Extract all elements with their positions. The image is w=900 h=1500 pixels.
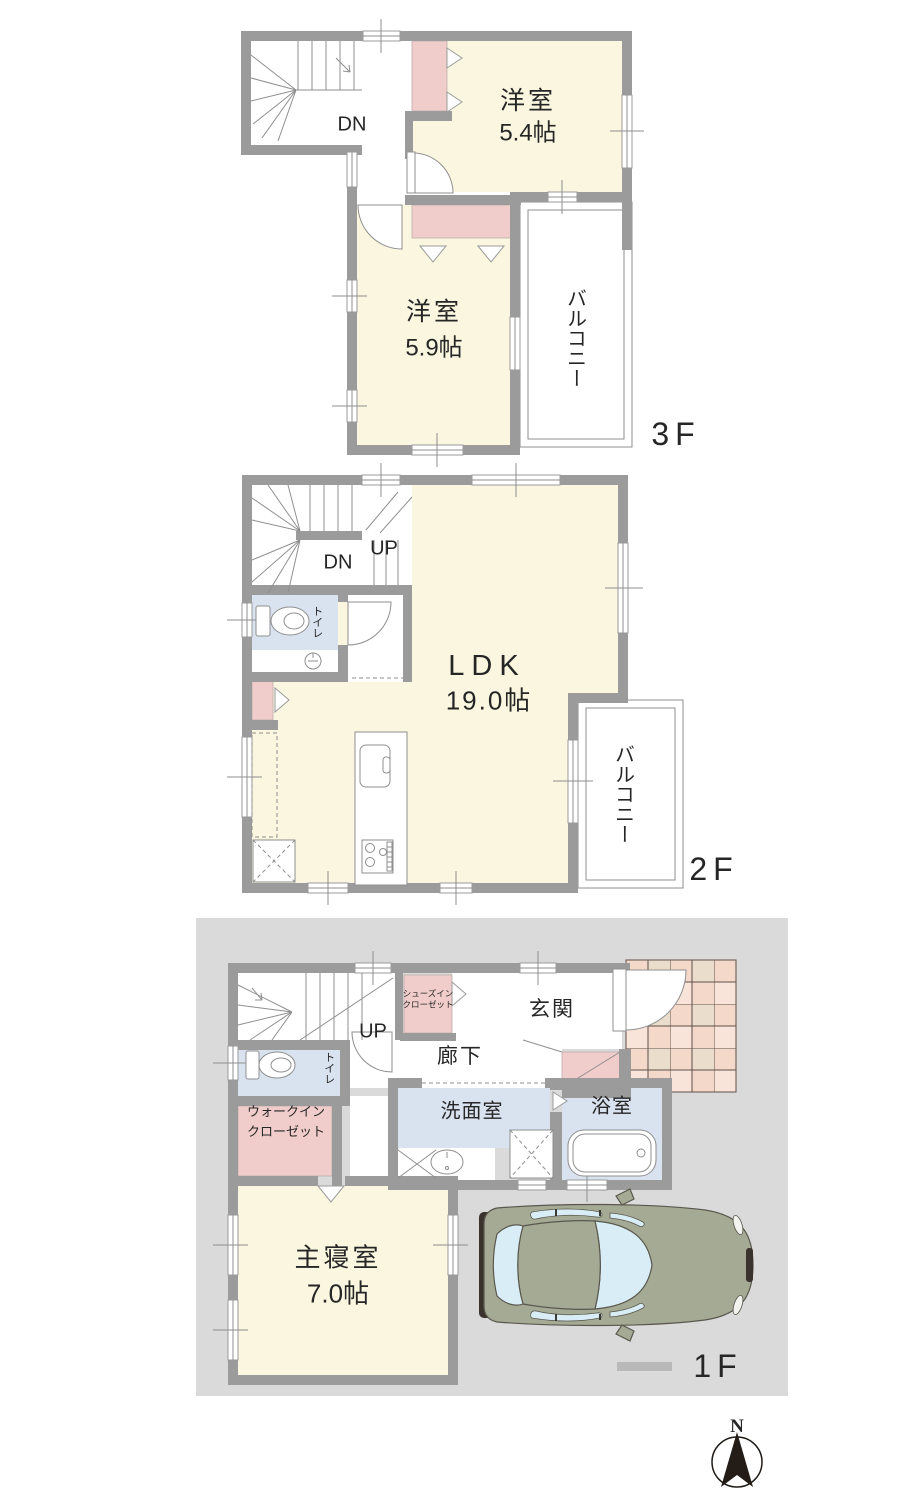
room-label-3f-b-name: 洋室 — [406, 299, 462, 325]
floor-label-2f: 2F — [689, 853, 738, 887]
room-label-2f-balcony: バルコニー — [612, 744, 633, 844]
floor-1f — [196, 918, 788, 1396]
room-label-3f-balcony: バルコニー — [564, 288, 585, 388]
room-label-bedroom: 主寝室 — [294, 1244, 381, 1271]
compass-icon — [712, 1432, 762, 1487]
hatch-box-2f — [253, 840, 295, 882]
room-label-2f-ldk: LDK — [448, 651, 525, 681]
stair-label-1f-up: UP — [359, 1022, 387, 1043]
parking-mark — [617, 1362, 672, 1371]
room-label-1f-toilet: トイレ — [322, 1052, 334, 1085]
room-label-2f-ldk-size: 19.0帖 — [446, 687, 533, 714]
basin-icon-1f — [431, 1150, 463, 1174]
closet-3f-b — [412, 205, 511, 238]
closet-3f-a — [412, 41, 447, 111]
room-label-3f-a-size: 5.4帖 — [499, 120, 556, 145]
room-label-3f-a-name: 洋室 — [500, 88, 556, 114]
floor-label-3f: 3F — [651, 418, 700, 452]
room-label-shoes-closet-1: シューズイン — [403, 990, 454, 999]
room-label-shoes-closet-2: クローゼット — [402, 1001, 453, 1010]
closet-2f — [252, 678, 273, 720]
basin-icon-2f — [305, 653, 321, 669]
compass-north-label: N — [730, 1417, 744, 1437]
room-label-bathroom: 浴室 — [591, 1097, 633, 1118]
stair-label-2f-up: UP — [370, 539, 398, 560]
floor-label-1f: 1F — [693, 1350, 742, 1384]
kitchen-island-icon — [355, 732, 407, 885]
room-label-hallway: 廊下 — [437, 1046, 483, 1068]
room-label-wic-2: クローゼット — [247, 1125, 325, 1139]
room-label-wic-1: ウォークイン — [247, 1105, 325, 1119]
washing-machine-icon — [510, 1130, 553, 1178]
floor-3f — [241, 19, 644, 467]
stair-label-3f-dn: DN — [338, 115, 367, 136]
floor-plan-page: DN 洋室 5.4帖 洋室 5.9帖 バルコニー 3F DN UP トイレ LD… — [0, 0, 900, 1500]
room-label-3f-b-size: 5.9帖 — [405, 335, 462, 360]
room-label-entrance: 玄関 — [529, 999, 575, 1021]
room-label-washroom: 洗面室 — [441, 1102, 504, 1123]
stair-label-2f-dn: DN — [324, 553, 353, 574]
room-label-bedroom-size: 7.0帖 — [307, 1280, 369, 1307]
floor-plan-drawing — [0, 0, 900, 1500]
car-icon — [479, 1189, 753, 1341]
toilet-icon-2f — [256, 606, 309, 636]
toilet-icon-1f — [246, 1051, 295, 1079]
room-label-2f-toilet: トイレ — [310, 606, 322, 639]
bathtub-icon — [568, 1130, 656, 1176]
